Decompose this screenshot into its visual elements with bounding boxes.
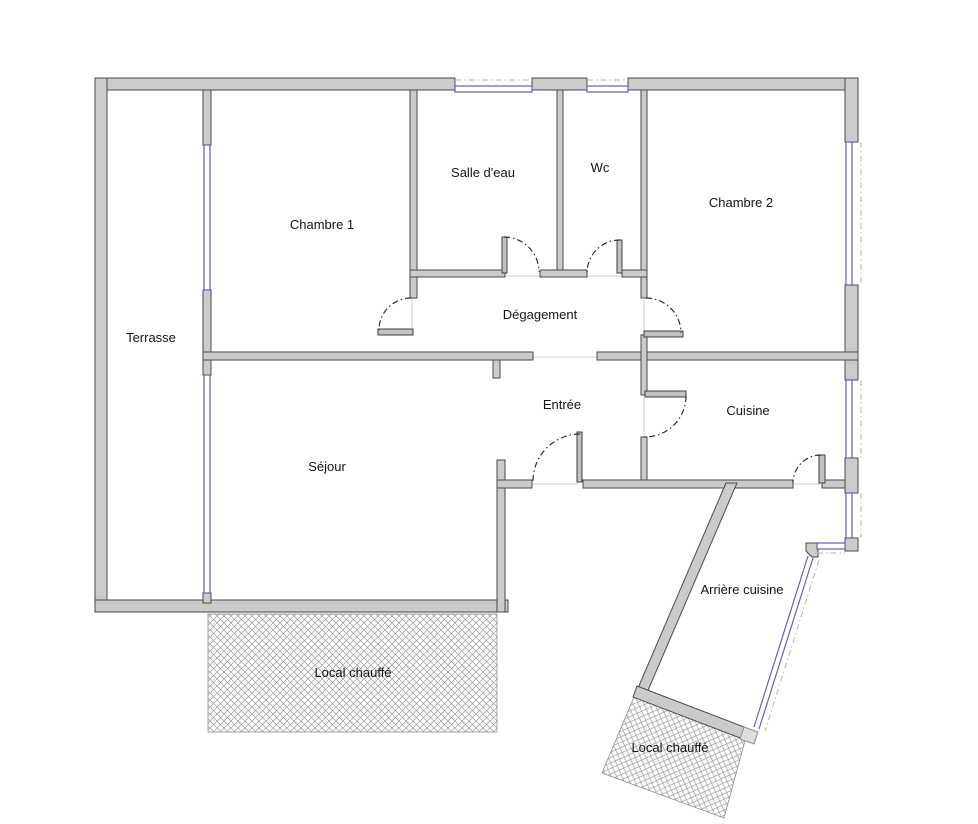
floor-plan-drawing: Terrasse Chambre 1 Salle d'eau Wc Chambr…	[0, 0, 978, 824]
window-cuisine-upper	[846, 380, 852, 458]
mid-bottom-wall	[540, 270, 587, 277]
door-arriere-cuisine	[793, 455, 825, 483]
room-label-wc: Wc	[591, 160, 610, 175]
door-entree	[533, 432, 582, 482]
door-arc-cuisine	[645, 396, 686, 437]
bottom-wall	[95, 600, 508, 612]
degagement-bottom-wall-right	[597, 352, 858, 360]
window-terrasse-chambre1	[204, 145, 210, 290]
entree-bottom-wall-mid	[583, 480, 793, 488]
wc-bottom-wall	[622, 270, 647, 277]
door-arc-entree	[533, 434, 580, 481]
window-arriere-horizontal	[817, 543, 845, 549]
top-wall-left	[95, 78, 455, 90]
window-terrasse-sejour	[204, 375, 210, 593]
door-cuisine	[645, 391, 686, 437]
cuisine-left-wall-upper	[641, 335, 647, 395]
door-wc	[587, 240, 622, 273]
top-wall-right	[628, 78, 858, 90]
door-salle-d-eau	[502, 237, 539, 273]
door-arc-chambre1	[379, 298, 411, 330]
room-label-sejour: Séjour	[308, 459, 346, 474]
degagement-bottom-wall-left	[203, 352, 533, 360]
room-label-salle-d-eau: Salle d'eau	[451, 165, 515, 180]
room-label-degagement: Dégagement	[503, 307, 578, 322]
door-chambre2	[644, 298, 683, 337]
entree-sejour-stub	[493, 360, 500, 378]
room-label-chambre-2: Chambre 2	[709, 195, 773, 210]
door-arc-arriere-cuisine	[793, 455, 821, 483]
terrasse-wall-mid	[203, 290, 211, 375]
door-chambre1	[378, 298, 413, 335]
window-salle-d-eau	[455, 86, 532, 92]
chambre2-left-wall	[641, 90, 647, 298]
right-wall-block	[845, 538, 858, 551]
door-thresholds	[412, 276, 820, 484]
room-label-terrasse: Terrasse	[126, 330, 176, 345]
right-wall-low	[845, 458, 858, 493]
door-leaf-salle-d-eau	[502, 237, 507, 273]
door-leaf-wc	[617, 240, 622, 273]
arriere-corner-block	[806, 543, 818, 557]
room-label-local-chauffe-1: Local chauffé	[314, 665, 391, 680]
room-label-cuisine: Cuisine	[726, 403, 769, 418]
door-leaf-cuisine	[645, 391, 686, 397]
entree-bottom-wall-left	[497, 480, 532, 488]
top-wall-mid	[532, 78, 587, 90]
chambre1-right-wall	[410, 90, 417, 298]
cuisine-left-wall-lower	[641, 437, 647, 483]
window-chambre2	[846, 142, 852, 285]
door-leaf-entree	[577, 432, 582, 482]
right-wall-mid	[845, 285, 858, 380]
local-chauffe-area-bottom-right	[602, 697, 746, 818]
salle-d-eau-wc-wall	[557, 90, 563, 277]
door-arc-salle-d-eau	[504, 237, 539, 272]
room-label-entree: Entrée	[543, 397, 581, 412]
door-leaf-arriere-cuisine	[819, 455, 825, 483]
terrasse-wall-lower	[203, 593, 211, 603]
door-leaf-chambre1	[378, 329, 413, 335]
salle-d-eau-bottom-wall	[410, 270, 505, 277]
window-wc	[587, 86, 628, 92]
room-label-arriere-cuisine: Arrière cuisine	[700, 582, 783, 597]
room-label-local-chauffe-2: Local chauffé	[631, 740, 708, 755]
terrasse-wall-upper	[203, 90, 211, 145]
door-arc-wc	[587, 240, 620, 273]
floor-plan-page: Terrasse Chambre 1 Salle d'eau Wc Chambr…	[0, 0, 978, 824]
left-wall	[95, 78, 107, 612]
window-cuisine-lower	[846, 493, 852, 538]
door-leaf-chambre2	[644, 331, 683, 337]
door-arc-chambre2	[646, 298, 681, 333]
right-wall-top	[845, 78, 858, 142]
room-label-chambre-1: Chambre 1	[290, 217, 354, 232]
